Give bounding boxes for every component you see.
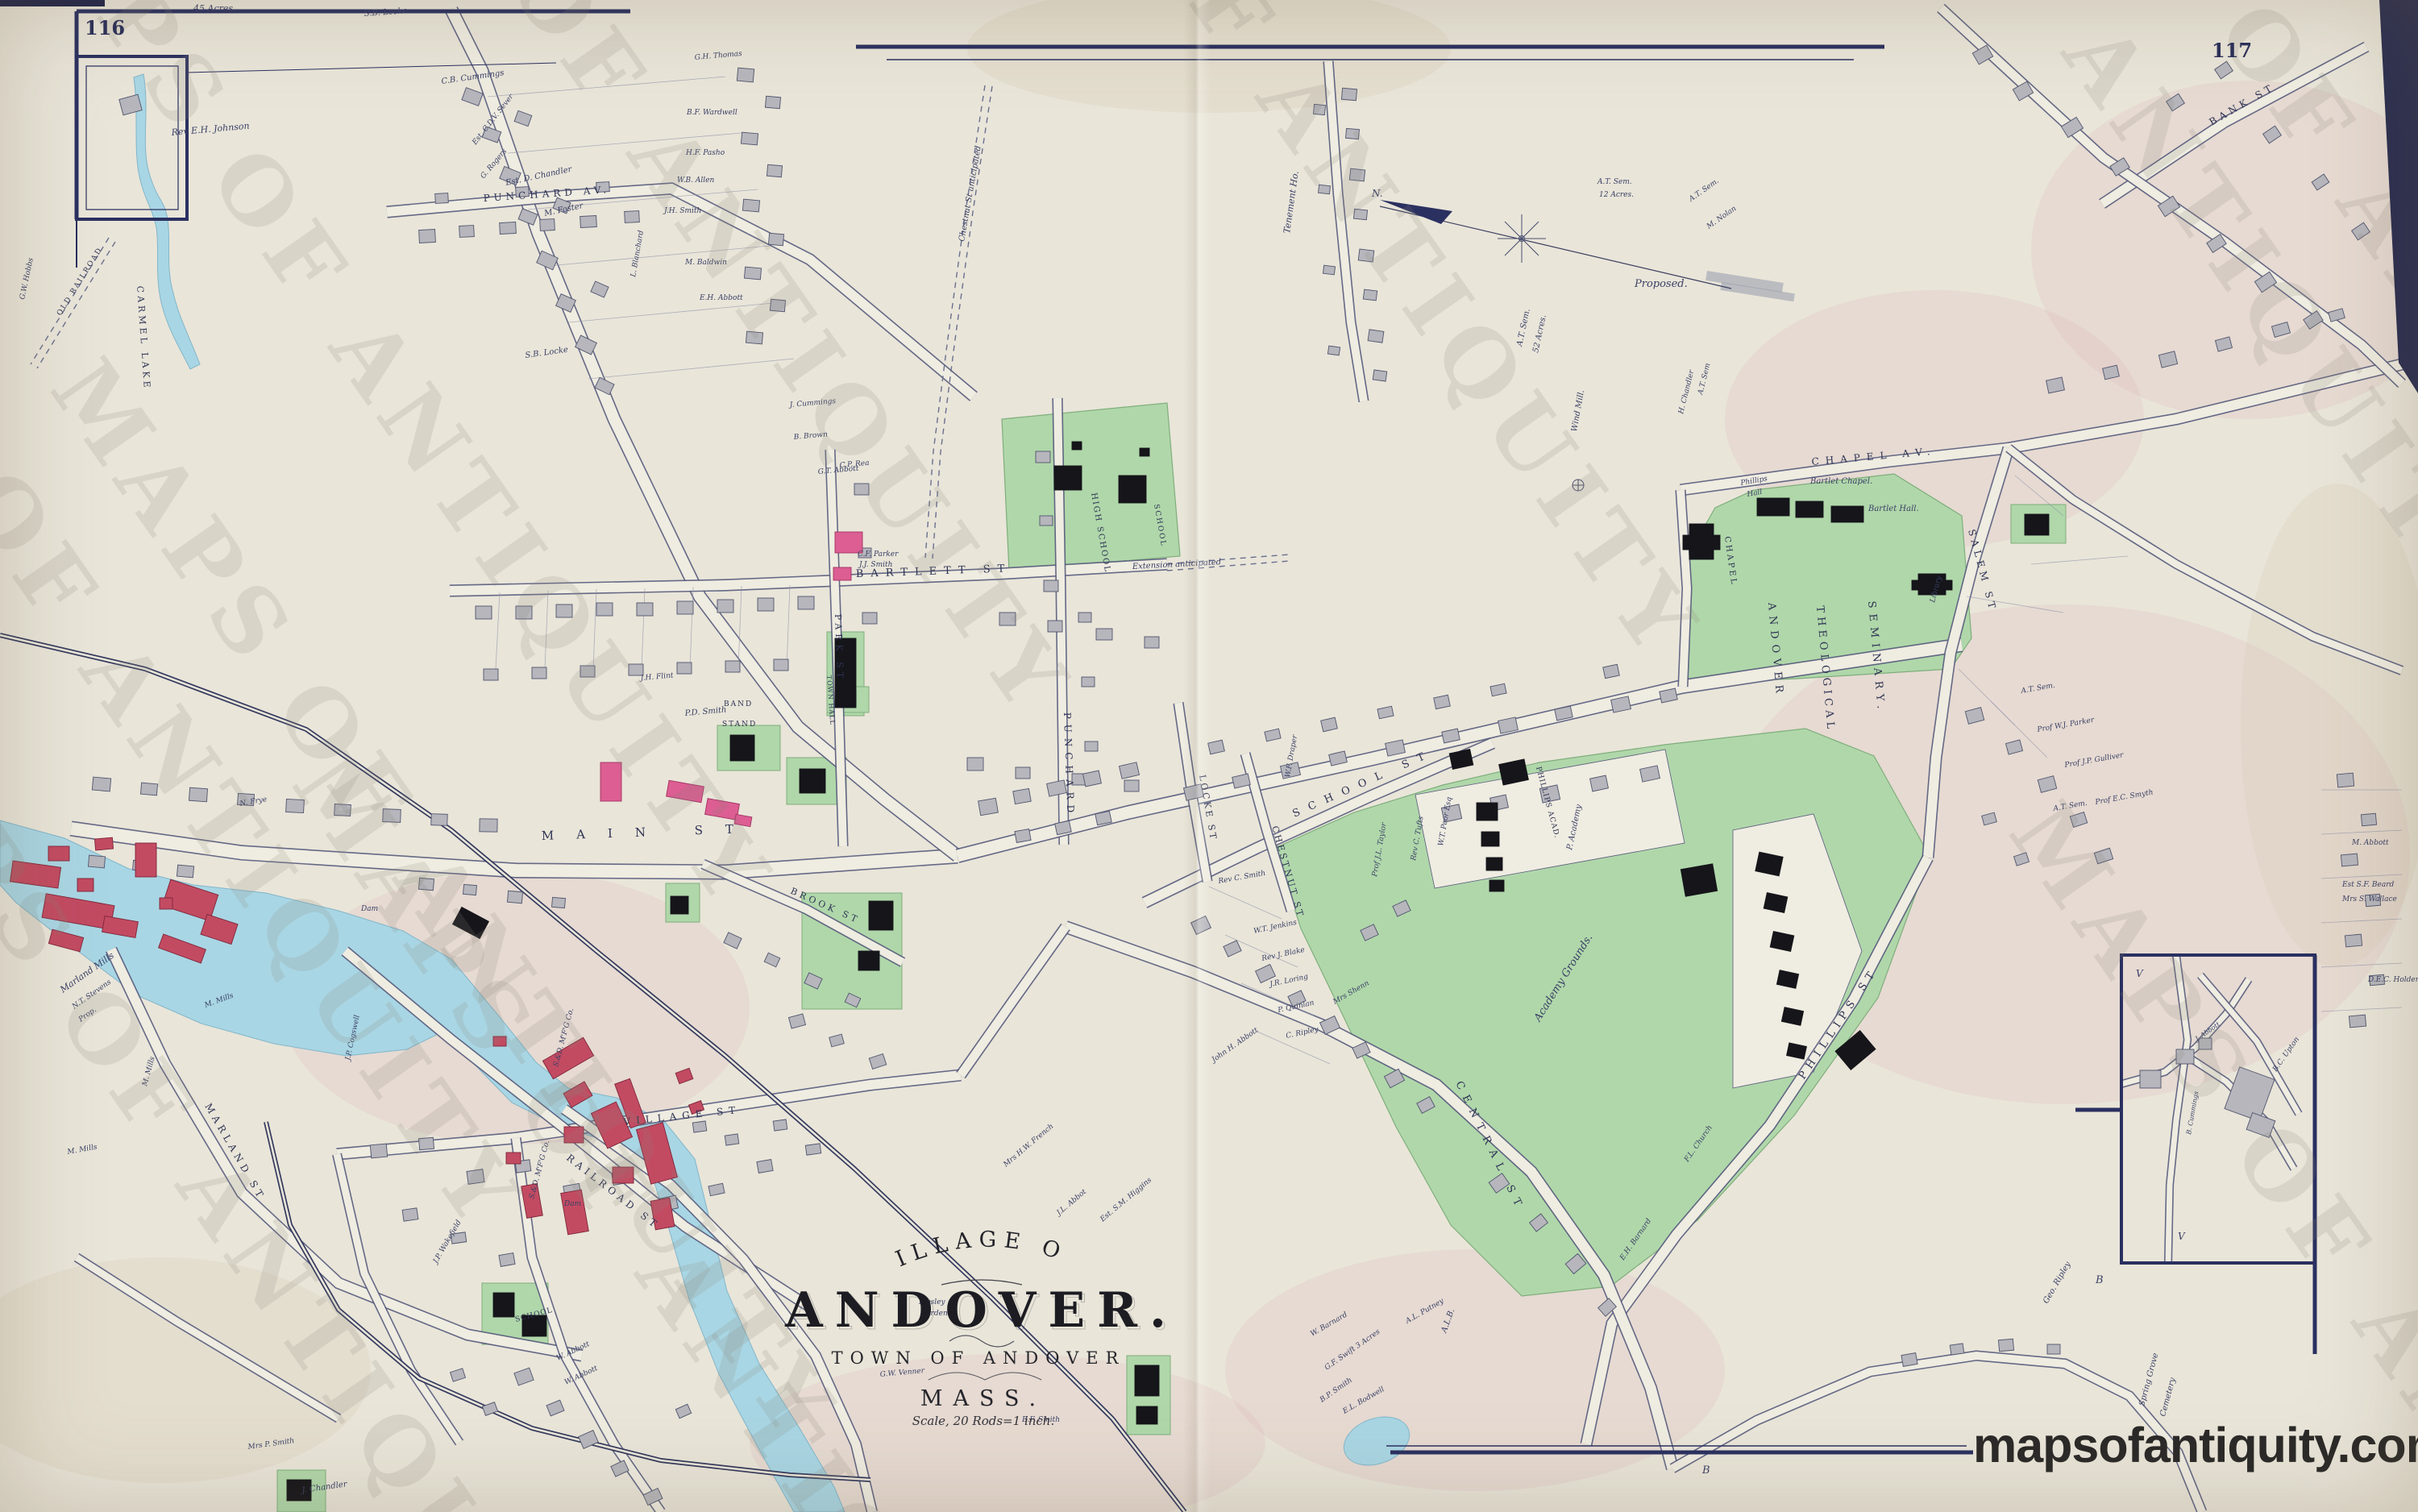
building-frame <box>1083 771 1102 787</box>
owner-name-label: Chestnut St anticipated <box>958 145 983 242</box>
building-frame <box>724 933 742 949</box>
building-frame <box>765 96 780 109</box>
building-frame <box>2361 813 2376 826</box>
owner-name-label: B <box>1701 1464 1710 1477</box>
owner-name-label: M. Mills <box>66 1144 98 1157</box>
owner-name-label: W.T. Jenkins <box>1253 919 1298 936</box>
building-public <box>1119 476 1146 503</box>
owner-name-label: C.B. Cummings <box>441 69 505 86</box>
building-frame <box>459 226 475 238</box>
building-frame <box>462 88 483 106</box>
building-frame <box>2345 934 2362 947</box>
building-frame <box>677 601 693 614</box>
building-frame <box>1119 762 1139 779</box>
owner-name-label: M. Abbott <box>2351 839 2389 847</box>
building-frame <box>1368 330 1384 343</box>
owner-name-label: B <box>2095 1274 2104 1286</box>
building-frame <box>2046 377 2065 393</box>
owner-name-label: 45 Acres. <box>193 3 236 14</box>
building-public <box>800 769 825 793</box>
building-frame <box>774 659 788 671</box>
building-public <box>1681 864 1717 896</box>
owner-name-label: J.L. Abbot <box>1054 1188 1088 1219</box>
building-frame <box>484 669 498 680</box>
parcel-line <box>787 585 790 669</box>
page-number-right: 117 <box>2212 39 2252 62</box>
building-frame <box>591 281 609 297</box>
building-frame <box>540 219 555 231</box>
building-mill <box>135 843 156 877</box>
building-frame <box>1373 370 1387 381</box>
building-frame <box>767 164 782 177</box>
building-public <box>671 896 688 914</box>
owner-name-label: G.W. Hobbs <box>19 257 35 301</box>
building-frame <box>737 68 754 82</box>
building-frame <box>499 1253 515 1267</box>
andover-map-canvas: N.MAIN STPUNCHARD AV.BARTLETT STPUNCHARD… <box>0 0 2418 1512</box>
building-public <box>1054 466 1082 490</box>
building-frame <box>580 215 597 227</box>
building-frame <box>1323 265 1335 275</box>
building-frame <box>1013 788 1031 804</box>
building-frame <box>1603 664 1620 678</box>
building-frame <box>829 1034 845 1047</box>
building-frame <box>88 855 105 868</box>
map-scan-page: N.MAIN STPUNCHARD AV.BARTLETT STPUNCHARD… <box>0 0 2418 1512</box>
building-frame <box>1015 829 1031 843</box>
owner-name-label: Est S.F. Beard <box>2341 881 2395 889</box>
building-public <box>837 691 856 705</box>
building-public <box>1140 448 1149 456</box>
building-frame <box>1078 613 1091 622</box>
building-frame <box>1321 717 1338 732</box>
owner-name-label: Est. S.M. Higgins <box>1099 1176 1154 1224</box>
building-frame <box>1590 775 1609 791</box>
building-frame <box>1434 695 1451 708</box>
building-frame <box>692 1121 707 1132</box>
building-frame <box>677 663 692 674</box>
building-frame <box>967 758 983 771</box>
building-frame <box>2349 1015 2366 1028</box>
building-frame <box>764 953 780 967</box>
building-frame <box>675 1404 691 1418</box>
building-frame <box>725 1134 739 1145</box>
building-frame <box>717 600 733 613</box>
owner-name-label: L. Blanchard <box>629 230 646 279</box>
owner-name-label: V <box>2178 1231 2186 1242</box>
building-frame <box>419 229 436 243</box>
owner-name-label: 52 Acres. <box>1531 314 1548 354</box>
building-frame <box>1016 767 1030 779</box>
building-frame <box>552 897 566 908</box>
building-frame <box>1377 706 1394 718</box>
owner-name-label: John H. Abbott <box>1209 1026 1260 1065</box>
building-frame <box>514 110 532 126</box>
building-frame <box>862 613 877 624</box>
building-frame <box>637 603 653 616</box>
building-frame <box>435 193 449 204</box>
building-frame <box>625 211 640 223</box>
building-frame <box>1145 637 1159 648</box>
building-public <box>1486 858 1502 870</box>
owner-name-label: Spring Grove <box>2138 1352 2160 1407</box>
street-name-label: BAND <box>724 700 753 708</box>
building-frame <box>451 1369 466 1381</box>
owner-name-label: P.D. Smith <box>683 706 727 719</box>
owner-name-label: H. Chandler <box>1677 369 1697 416</box>
building-frame <box>480 819 497 832</box>
building-public <box>1481 832 1499 846</box>
building-frame <box>1327 346 1340 355</box>
building-frame <box>402 1208 418 1221</box>
building-frame <box>1208 740 1225 754</box>
parcel-line <box>2031 556 2128 564</box>
owner-name-label: S.B. Locke <box>364 6 407 19</box>
owner-name-label: Mrs H.W. French <box>1002 1123 1056 1169</box>
building-frame <box>798 596 814 609</box>
building-frame <box>1265 729 1281 741</box>
page-number-left: 116 <box>85 16 125 39</box>
building-public <box>1796 501 1823 517</box>
building-public <box>1831 506 1863 522</box>
owner-name-label: C. Ripley <box>1286 1025 1320 1040</box>
building-frame <box>788 1014 805 1028</box>
owner-name-label: Geo. Ripley <box>2042 1260 2073 1305</box>
building-frame <box>758 598 774 611</box>
building-public <box>1136 1406 1157 1424</box>
owner-name-label: S.B. Locke <box>525 346 569 360</box>
building-mill <box>48 846 69 861</box>
building-frame <box>1490 683 1506 696</box>
parcel-line <box>690 587 693 669</box>
building-mill <box>94 837 113 850</box>
building-block <box>833 567 851 580</box>
building-frame <box>2337 773 2354 787</box>
title-main: ANDOVER. <box>784 1282 1178 1339</box>
building-public <box>1477 803 1498 820</box>
owner-name-label: Bartlet Hall. <box>1868 505 1919 513</box>
title-state: MASS. <box>920 1386 1046 1411</box>
building-mill <box>160 898 172 909</box>
building-mill <box>77 879 93 891</box>
building-frame <box>1040 516 1053 525</box>
building-frame <box>725 661 740 672</box>
parcel-line <box>1209 887 1282 919</box>
building-frame <box>1096 629 1112 640</box>
owner-name-label: 12 Acres. <box>1599 191 1634 199</box>
owner-name-label: Mrs S. Wallace <box>2341 895 2397 903</box>
owner-name-label: A.T. Sem. <box>1597 178 1632 186</box>
building-frame <box>500 222 517 234</box>
building-frame <box>514 1368 534 1385</box>
building-frame <box>546 1400 564 1416</box>
street <box>961 927 1066 1075</box>
street-name-label: STAND <box>722 721 757 729</box>
building-public <box>869 901 893 930</box>
building-frame <box>1191 916 1211 935</box>
building-frame <box>1044 580 1058 592</box>
owner-name-label: D.E.C. Holden <box>2367 976 2418 984</box>
photo-edge-top-left <box>0 0 105 6</box>
title-town-of: TOWN OF ANDOVER <box>832 1348 1126 1368</box>
building-frame <box>1901 1353 1917 1367</box>
owner-name-label: M. Nolan <box>1705 205 1738 231</box>
owner-name-label: A.T. Sem <box>1697 363 1713 397</box>
title-scale: Scale, 20 Rods=1 inch. <box>912 1414 1054 1428</box>
building-frame <box>92 777 110 791</box>
building-frame <box>2341 854 2358 866</box>
owner-name-label: A.T. Sem. <box>1687 177 1721 204</box>
building-public <box>858 951 879 970</box>
building-public <box>730 735 754 761</box>
building-public <box>1072 442 1082 450</box>
green-grounds <box>1002 403 1180 571</box>
building-frame <box>978 798 999 816</box>
building-frame <box>1998 1339 2013 1352</box>
building-frame <box>741 132 758 145</box>
owner-name-label: Proposed. <box>1634 278 1688 290</box>
building-frame <box>805 1144 821 1155</box>
building-frame <box>1085 741 1098 751</box>
building-public <box>2025 514 2049 535</box>
street-name-label: OLD RAILROAD <box>56 246 104 318</box>
building-frame <box>869 1054 886 1070</box>
watermark-site-url: mapsofantiquity.com <box>1973 1417 2418 1473</box>
building-public <box>1757 498 1789 516</box>
building-public <box>1489 880 1504 891</box>
owner-name-label: G.H. Thomas <box>694 50 742 62</box>
building-public <box>493 1293 514 1317</box>
owner-name-label: Cemetery <box>2158 1377 2177 1418</box>
building-public <box>1449 750 1473 770</box>
owner-name-label: Bartlet Chapel. <box>1809 477 1872 486</box>
building-frame <box>757 1160 773 1173</box>
building-frame <box>2047 1344 2060 1354</box>
building-frame <box>1124 780 1139 791</box>
building-frame <box>1036 451 1050 463</box>
building-public <box>1683 535 1720 550</box>
building-frame <box>1950 1344 1964 1355</box>
building-frame <box>773 1119 787 1131</box>
building-public <box>1135 1365 1159 1396</box>
building-frame <box>1224 941 1241 957</box>
owner-name-label: Rev C. Smith <box>1217 870 1266 886</box>
